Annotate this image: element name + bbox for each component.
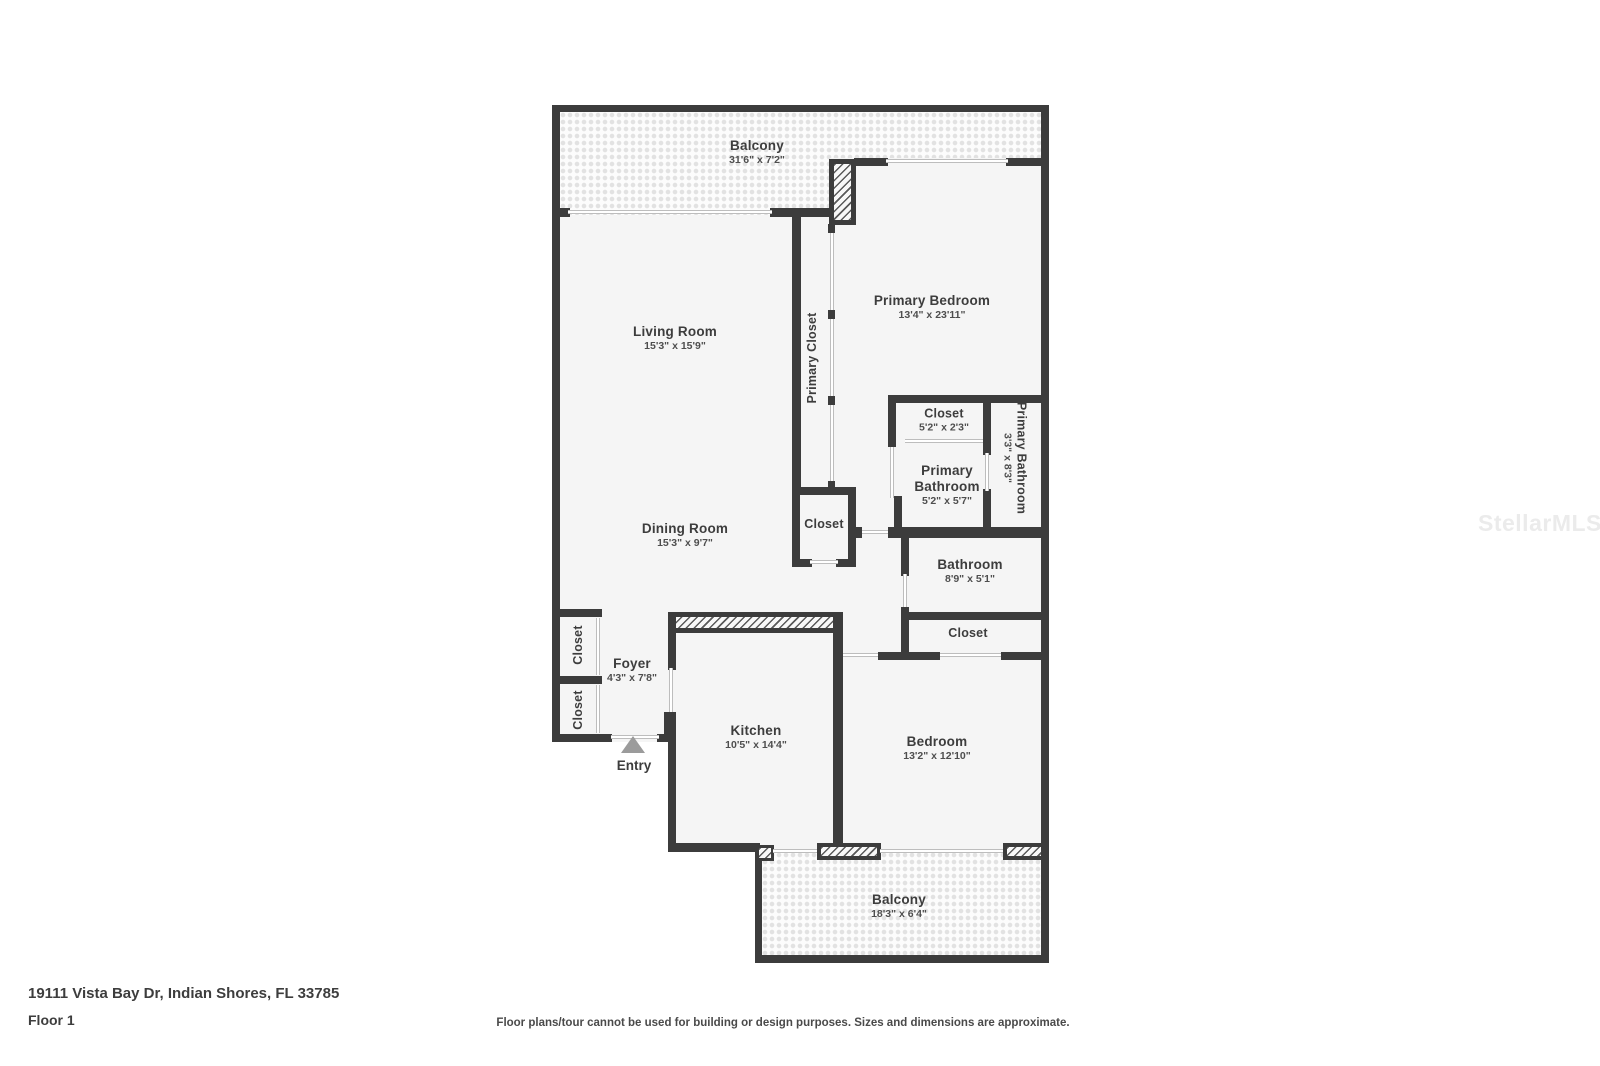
wall-segment — [668, 843, 760, 852]
room-label-foyer: Foyer 4'3" x 7'8" — [607, 656, 657, 684]
wall-segment — [983, 401, 991, 455]
structural-column — [829, 159, 856, 225]
room-label-primary-bedroom: Primary Bedroom 13'4" x 23'11" — [874, 293, 990, 321]
wall-segment — [888, 527, 1041, 538]
wall-stub — [828, 310, 835, 319]
wall-segment — [755, 845, 762, 963]
closet-opening — [830, 224, 834, 490]
room-label-closet-bath: Closet — [948, 626, 987, 640]
room-label-closet-foyer-2: Closet — [571, 690, 585, 729]
closet-door-opening — [940, 653, 1001, 657]
window-opening — [773, 849, 818, 853]
door-opening — [810, 560, 838, 564]
wall-segment — [792, 559, 812, 567]
door-opening — [890, 447, 894, 498]
property-address: 19111 Vista Bay Dr, Indian Shores, FL 33… — [28, 985, 339, 1002]
wall-segment — [755, 955, 1049, 963]
watermark: StellarMLS — [1478, 510, 1600, 537]
wall-segment — [792, 217, 801, 494]
wall-stub — [828, 396, 835, 405]
room-label-closet-foyer-1: Closet — [571, 625, 585, 664]
wall-segment — [1006, 158, 1041, 166]
room-label-primary-bathroom-2: Primary Bathroom 3'3" x 8'3" — [1002, 402, 1029, 514]
wall-segment — [770, 208, 832, 217]
wall-segment — [901, 536, 909, 576]
wall-segment — [901, 612, 1041, 620]
wall-segment — [888, 395, 896, 447]
room-label-kitchen: Kitchen 10'5" x 14'4" — [725, 723, 787, 751]
wall-segment — [552, 105, 1049, 112]
window-opening — [886, 159, 1008, 163]
balcony-top-floor-deep — [560, 112, 830, 215]
room-label-closet-primary: Closet 5'2" x 2'3" — [919, 407, 969, 434]
sliding-door — [817, 843, 881, 860]
wall-segment — [1041, 105, 1049, 963]
wall-segment — [552, 609, 602, 617]
corner-post — [756, 845, 774, 861]
wall-segment — [664, 712, 673, 742]
closet-door-opening — [596, 618, 600, 675]
room-label-primary-bathroom: Primary Bathroom 5'2" x 5'7" — [897, 463, 997, 507]
room-label-living-room: Living Room 15'3" x 15'9" — [633, 324, 717, 352]
wall-segment — [668, 615, 676, 670]
room-label-closet-hall: Closet — [804, 517, 843, 531]
room-label-bedroom: Bedroom 13'2" x 12'10" — [903, 734, 971, 762]
wall-segment — [833, 612, 843, 852]
kitchen-pass-wall — [668, 612, 840, 633]
window-opening — [568, 210, 772, 214]
wall-segment — [854, 158, 888, 166]
disclaimer-text: Floor plans/tour cannot be used for buil… — [496, 1017, 1069, 1029]
door-opening — [843, 653, 878, 657]
room-label-bathroom: Bathroom 8'9" x 5'1" — [937, 557, 1002, 585]
wall-segment — [836, 559, 856, 567]
closet-door-opening — [596, 685, 600, 733]
wall-segment — [792, 487, 856, 495]
floor-fill-kitchen-bedroom — [668, 612, 1041, 852]
wall-stub — [828, 224, 835, 233]
room-label-balcony-bottom: Balcony 18'3" x 6'4" — [871, 892, 927, 920]
door-opening — [905, 439, 983, 443]
room-label-primary-closet: Primary Closet — [805, 312, 819, 403]
wall-segment — [552, 676, 602, 684]
floor-label: Floor 1 — [28, 1012, 75, 1028]
entry-label: Entry — [617, 758, 652, 773]
wall-segment — [792, 487, 800, 567]
wall-segment — [878, 652, 940, 660]
wall-segment — [552, 105, 560, 742]
wall-segment — [552, 734, 612, 742]
wall-segment — [848, 527, 862, 538]
room-label-dining-room: Dining Room 15'3" x 9'7" — [642, 521, 728, 549]
window-opening — [880, 849, 1005, 853]
wall-segment — [1001, 652, 1041, 660]
entry-arrow-icon — [621, 736, 645, 753]
door-opening — [903, 574, 907, 609]
room-label-balcony-top: Balcony 31'6" x 7'2" — [729, 138, 785, 166]
door-opening — [669, 668, 673, 713]
sliding-door — [1003, 843, 1045, 860]
floor-plan-canvas: Balcony 31'6" x 7'2" Living Room 15'3" x… — [0, 0, 1600, 1066]
